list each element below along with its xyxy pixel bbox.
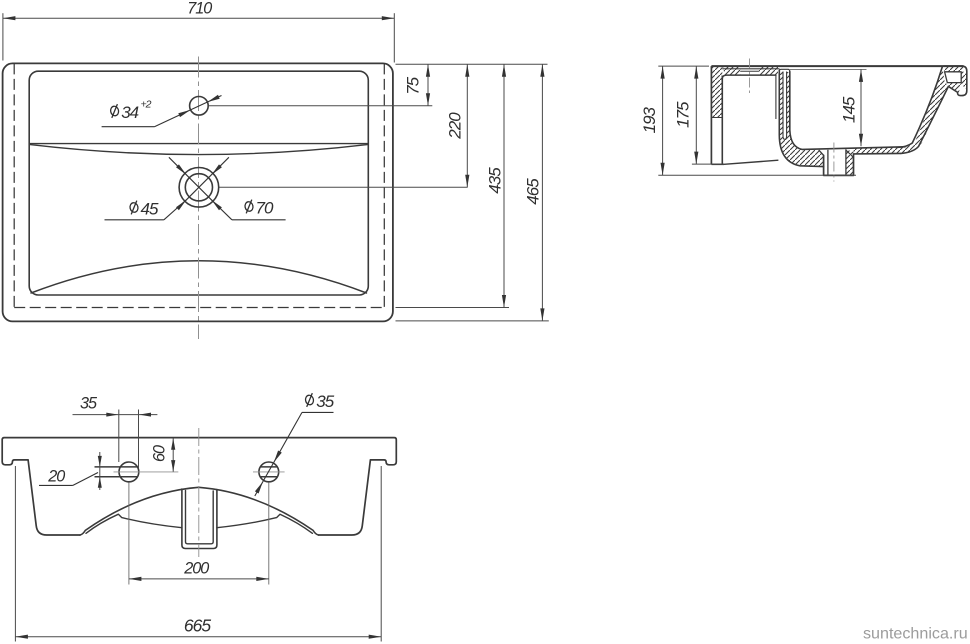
svg-text:suntechnica.ru: suntechnica.ru <box>863 625 968 643</box>
svg-text:45: 45 <box>141 199 159 218</box>
svg-text:175: 175 <box>674 101 693 128</box>
svg-text:145: 145 <box>839 96 858 123</box>
svg-text:34: 34 <box>121 103 138 122</box>
svg-text:193: 193 <box>640 106 659 133</box>
svg-text:+2: +2 <box>141 99 152 111</box>
svg-text:75: 75 <box>404 76 423 94</box>
svg-text:60: 60 <box>151 445 169 462</box>
svg-text:35: 35 <box>80 395 98 413</box>
svg-text:35: 35 <box>316 392 334 411</box>
svg-text:465: 465 <box>524 178 543 205</box>
svg-text:200: 200 <box>183 560 209 578</box>
svg-text:665: 665 <box>184 615 211 635</box>
svg-text:435: 435 <box>486 167 505 194</box>
svg-text:20: 20 <box>47 468 65 486</box>
svg-text:710: 710 <box>187 0 212 18</box>
svg-text:70: 70 <box>256 198 274 217</box>
svg-text:220: 220 <box>446 112 465 140</box>
